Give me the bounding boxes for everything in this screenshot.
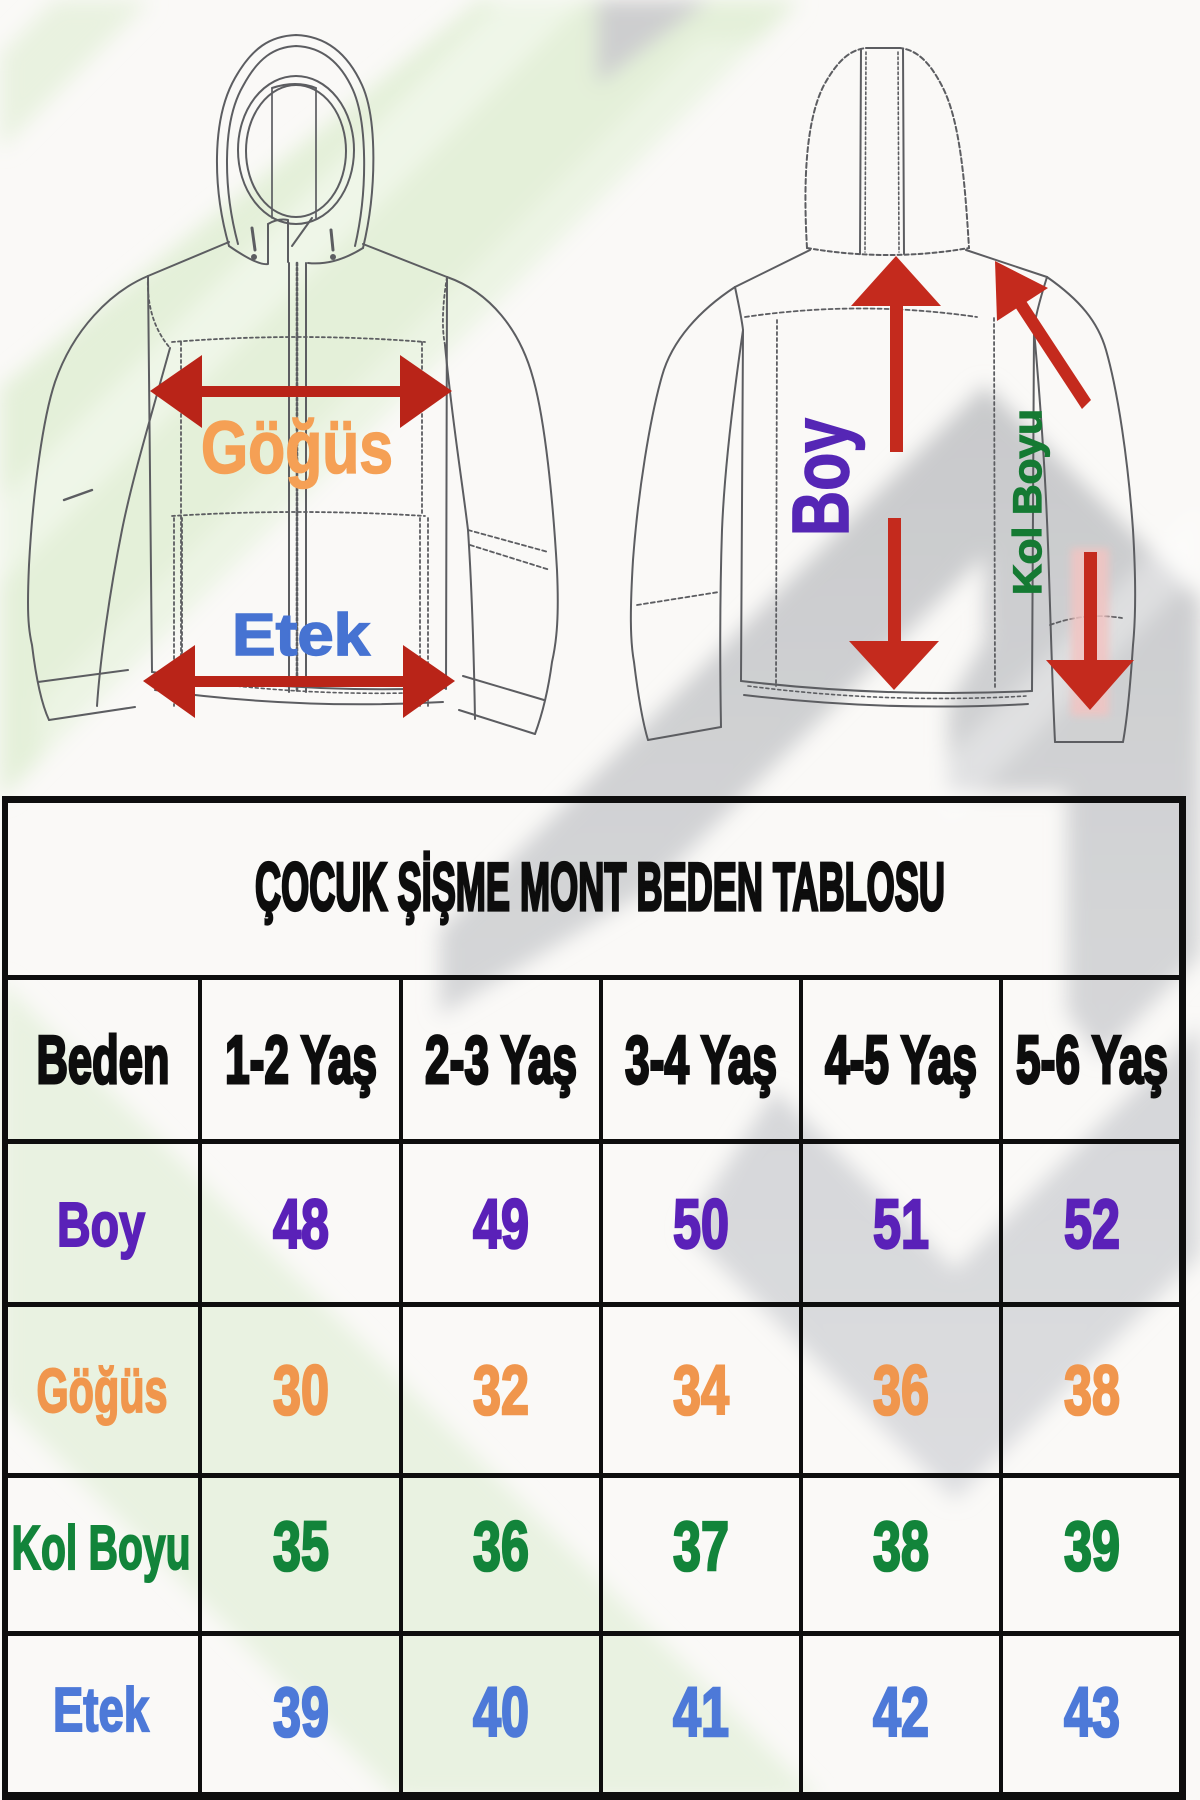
svg-text:Kol Boyu: Kol Boyu [1006, 409, 1050, 595]
svg-text:36: 36 [473, 1507, 529, 1585]
svg-text:Göğüs: Göğüs [37, 1357, 168, 1426]
svg-text:30: 30 [273, 1351, 329, 1429]
svg-text:40: 40 [473, 1673, 529, 1751]
svg-text:Boy: Boy [57, 1191, 145, 1260]
svg-text:52: 52 [1064, 1185, 1120, 1263]
svg-text:Beden: Beden [37, 1022, 170, 1098]
svg-text:5-6 Yaş: 5-6 Yaş [1016, 1022, 1168, 1098]
svg-text:38: 38 [1064, 1351, 1120, 1429]
svg-text:Boy: Boy [776, 418, 865, 536]
svg-text:41: 41 [673, 1673, 729, 1751]
svg-text:51: 51 [873, 1185, 929, 1263]
svg-text:38: 38 [873, 1507, 929, 1585]
svg-text:50: 50 [673, 1185, 729, 1263]
svg-text:36: 36 [873, 1351, 929, 1429]
svg-text:32: 32 [473, 1351, 529, 1429]
svg-text:Etek: Etek [53, 1676, 149, 1745]
svg-text:Göğüs: Göğüs [201, 406, 393, 489]
svg-text:42: 42 [873, 1673, 929, 1751]
svg-text:49: 49 [473, 1185, 529, 1263]
svg-text:Kol Boyu: Kol Boyu [12, 1514, 191, 1583]
svg-text:39: 39 [1064, 1507, 1120, 1585]
svg-text:ÇOCUK ŞİŞME MONT BEDEN TABLOSU: ÇOCUK ŞİŞME MONT BEDEN TABLOSU [255, 849, 945, 925]
svg-text:1-2 Yaş: 1-2 Yaş [225, 1022, 377, 1098]
svg-text:3-4 Yaş: 3-4 Yaş [625, 1022, 777, 1098]
svg-text:43: 43 [1064, 1673, 1120, 1751]
svg-text:Etek: Etek [232, 602, 370, 668]
svg-text:35: 35 [273, 1507, 329, 1585]
svg-text:37: 37 [673, 1507, 729, 1585]
svg-text:4-5 Yaş: 4-5 Yaş [825, 1022, 977, 1098]
svg-text:39: 39 [273, 1673, 329, 1751]
svg-text:2-3 Yaş: 2-3 Yaş [425, 1022, 577, 1098]
svg-text:48: 48 [273, 1185, 329, 1263]
svg-text:34: 34 [673, 1351, 729, 1429]
